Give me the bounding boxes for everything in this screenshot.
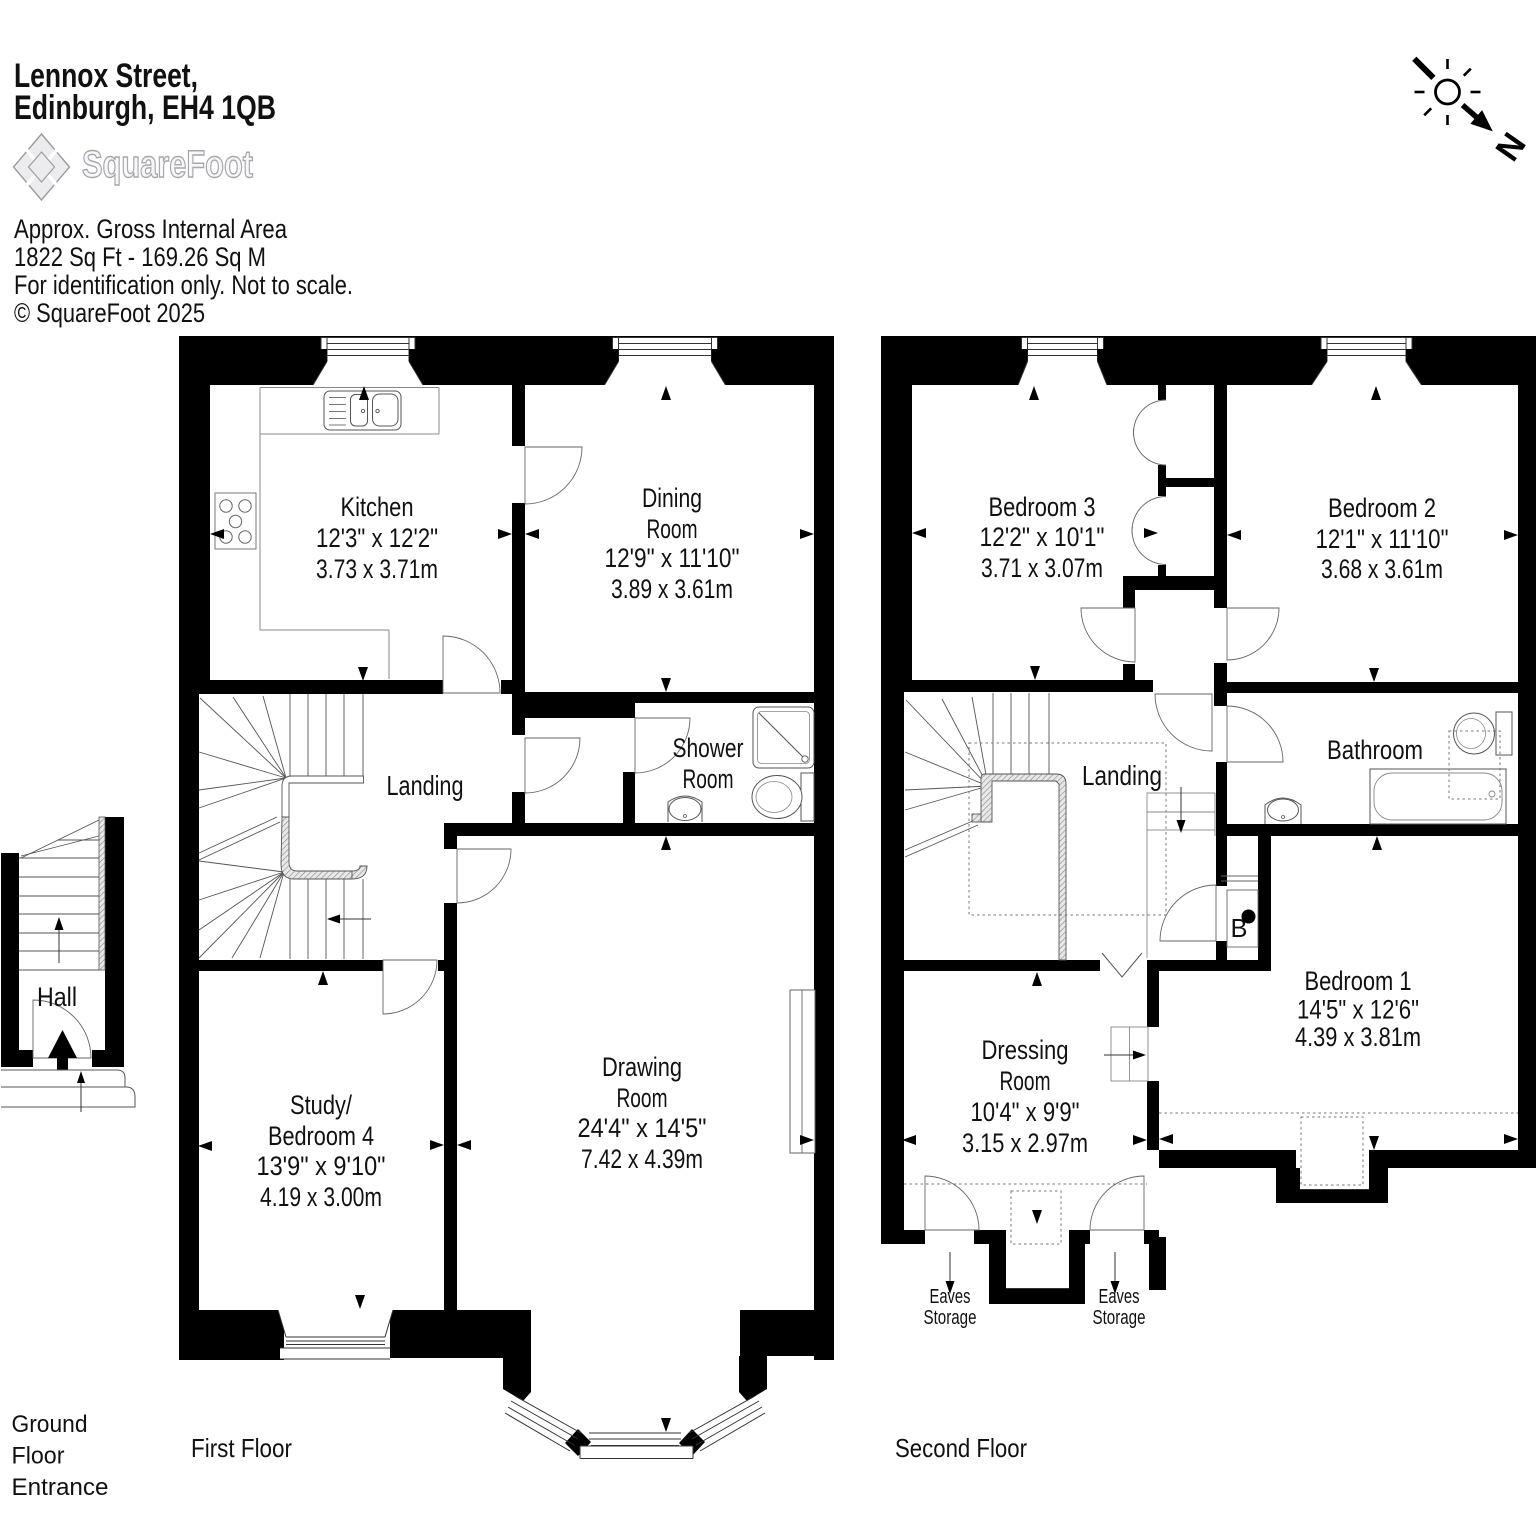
svg-text:Bedroom 1: Bedroom 1 [1305,966,1412,996]
svg-text:7.42 x 4.39m: 7.42 x 4.39m [581,1144,703,1174]
svg-text:12'1" x 11'10": 12'1" x 11'10" [1316,524,1449,554]
svg-text:10'4" x 9'9": 10'4" x 9'9" [971,1097,1080,1127]
svg-text:Storage: Storage [1093,1307,1146,1329]
svg-text:First Floor: First Floor [191,1433,292,1463]
svg-text:Room: Room [617,1083,668,1113]
svg-text:Dressing: Dressing [982,1035,1069,1065]
svg-text:3.68 x 3.61m: 3.68 x 3.61m [1321,554,1443,584]
svg-text:For identification only. Not t: For identification only. Not to scale. [14,270,353,300]
svg-text:Hall: Hall [37,982,77,1012]
svg-text:3.89 x 3.61m: 3.89 x 3.61m [611,574,733,604]
svg-text:SquareFoot: SquareFoot [82,144,253,186]
svg-text:Drawing: Drawing [602,1052,682,1082]
svg-text:Storage: Storage [924,1307,977,1329]
svg-text:3.71 x 3.07m: 3.71 x 3.07m [981,553,1103,583]
svg-text:3.73 x 3.71m: 3.73 x 3.71m [316,554,438,584]
svg-text:Bathroom: Bathroom [1327,735,1423,765]
svg-text:Second Floor: Second Floor [895,1433,1027,1463]
svg-text:Floor: Floor [12,1443,65,1470]
svg-text:3.15 x 2.97m: 3.15 x 2.97m [962,1128,1088,1158]
svg-text:Room: Room [683,764,734,794]
svg-text:14'5" x 12'6": 14'5" x 12'6" [1297,995,1419,1025]
svg-text:Entrance: Entrance [12,1474,109,1501]
svg-text:Approx. Gross Internal Area: Approx. Gross Internal Area [14,214,288,244]
svg-text:4.19 x 3.00m: 4.19 x 3.00m [260,1182,382,1212]
svg-text:Bedroom 2: Bedroom 2 [1328,493,1436,523]
svg-text:12'2" x 10'1": 12'2" x 10'1" [980,522,1105,552]
svg-text:Study/: Study/ [290,1090,352,1120]
svg-text:Landing: Landing [1082,760,1162,791]
svg-text:Bedroom 3: Bedroom 3 [989,492,1096,522]
svg-text:© SquareFoot 2025: © SquareFoot 2025 [14,298,205,328]
svg-text:24'4" x 14'5": 24'4" x 14'5" [578,1113,707,1143]
svg-text:Ground: Ground [12,1411,88,1438]
svg-text:Dining: Dining [642,483,702,513]
svg-text:12'9" x 11'10": 12'9" x 11'10" [605,543,740,573]
svg-text:1822 Sq Ft - 169.26 Sq M: 1822 Sq Ft - 169.26 Sq M [14,242,266,272]
svg-text:Room: Room [1000,1066,1051,1096]
svg-text:Edinburgh, EH4 1QB: Edinburgh, EH4 1QB [14,89,276,127]
svg-text:13'9" x 9'10": 13'9" x 9'10" [257,1151,386,1181]
svg-text:Room: Room [647,514,698,544]
svg-text:4.39 x 3.81m: 4.39 x 3.81m [1295,1022,1421,1052]
svg-text:Eaves: Eaves [930,1286,971,1308]
svg-text:Bedroom 4: Bedroom 4 [268,1121,374,1151]
svg-text:Eaves: Eaves [1099,1286,1140,1308]
svg-text:12'3" x 12'2": 12'3" x 12'2" [316,523,438,553]
svg-text:Landing: Landing [387,770,464,801]
svg-text:Shower: Shower [673,733,744,763]
svg-text:Kitchen: Kitchen [341,492,414,522]
